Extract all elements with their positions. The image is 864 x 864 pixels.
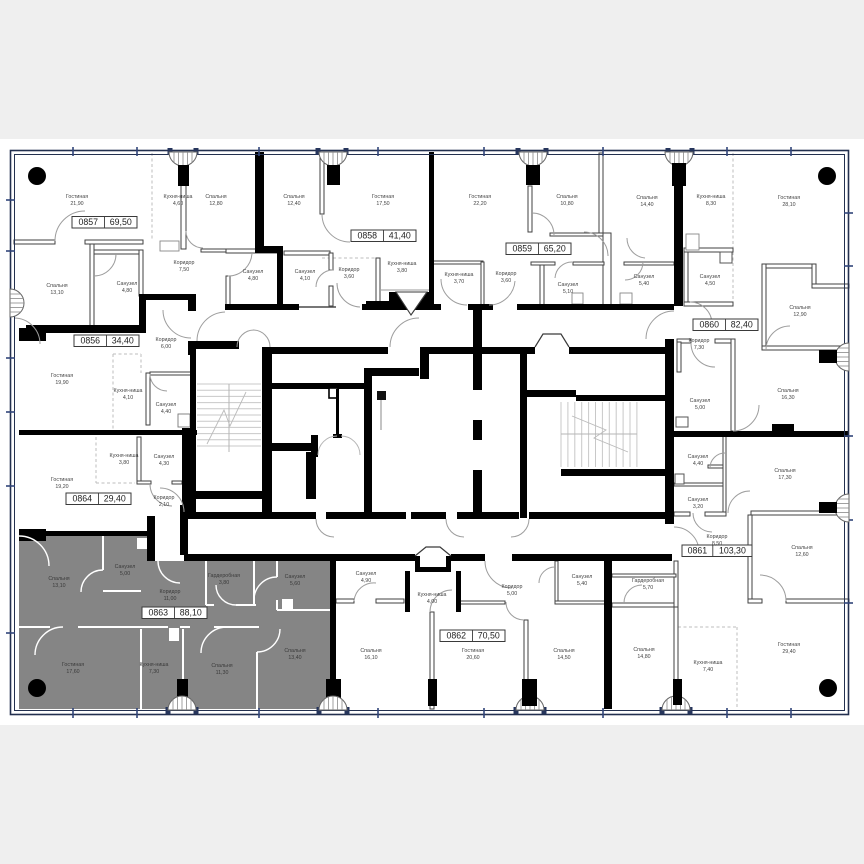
svg-text:4,10: 4,10	[300, 276, 310, 282]
svg-text:4,10: 4,10	[123, 395, 133, 401]
svg-text:6,00: 6,00	[161, 344, 171, 350]
svg-text:Коридор: Коридор	[156, 337, 177, 343]
svg-text:0864: 0864	[72, 494, 92, 504]
svg-text:Кухня-ниша: Кухня-ниша	[696, 194, 725, 200]
svg-text:4,00: 4,00	[427, 599, 437, 605]
svg-text:Санузел: Санузел	[634, 274, 655, 280]
svg-text:3,60: 3,60	[344, 274, 354, 280]
svg-text:Коридор: Коридор	[502, 584, 523, 590]
svg-text:Коридор: Коридор	[496, 271, 517, 277]
svg-text:Санузел: Санузел	[356, 571, 377, 577]
svg-text:4,50: 4,50	[705, 281, 715, 287]
svg-text:Санузел: Санузел	[688, 454, 709, 460]
svg-text:Гостиная: Гостиная	[462, 648, 484, 654]
svg-text:Спальня: Спальня	[205, 194, 226, 200]
svg-text:14,50: 14,50	[557, 655, 570, 661]
svg-text:12,60: 12,60	[795, 552, 808, 558]
svg-text:Спальня: Спальня	[774, 468, 795, 474]
svg-text:17,30: 17,30	[778, 475, 791, 481]
svg-text:19,90: 19,90	[55, 380, 68, 386]
svg-text:3,80: 3,80	[119, 460, 129, 466]
svg-text:Спальня: Спальня	[283, 194, 304, 200]
svg-text:Коридор: Коридор	[174, 260, 195, 266]
svg-text:3,80: 3,80	[397, 268, 407, 274]
svg-text:4,30: 4,30	[159, 461, 169, 467]
svg-text:65,20: 65,20	[544, 244, 566, 254]
svg-text:19,20: 19,20	[55, 484, 68, 490]
svg-text:Гостиная: Гостиная	[51, 373, 73, 379]
svg-text:Санузел: Санузел	[690, 398, 711, 404]
svg-text:29,40: 29,40	[104, 494, 126, 504]
svg-text:13,10: 13,10	[50, 290, 63, 296]
svg-text:22,20: 22,20	[473, 201, 486, 207]
svg-text:34,40: 34,40	[112, 336, 134, 346]
svg-text:Спальня: Спальня	[789, 305, 810, 311]
svg-text:3,70: 3,70	[454, 279, 464, 285]
svg-text:69,50: 69,50	[110, 217, 132, 227]
svg-text:16,10: 16,10	[364, 655, 377, 661]
svg-text:Спальня: Спальня	[777, 388, 798, 394]
svg-text:3,20: 3,20	[693, 504, 703, 510]
svg-text:7,30: 7,30	[149, 669, 159, 675]
svg-text:Спальня: Спальня	[211, 663, 232, 669]
svg-text:Гостиная: Гостиная	[469, 194, 491, 200]
svg-text:5,10: 5,10	[563, 289, 573, 295]
svg-text:0862: 0862	[446, 631, 466, 641]
svg-text:Гостиная: Гостиная	[66, 194, 88, 200]
svg-text:Кухня-ниша: Кухня-ниша	[109, 453, 138, 459]
svg-text:29,40: 29,40	[782, 649, 795, 655]
svg-text:4,40: 4,40	[161, 409, 171, 415]
svg-text:5,60: 5,60	[290, 581, 300, 587]
svg-text:20,60: 20,60	[466, 655, 479, 661]
svg-text:Санузел: Санузел	[572, 574, 593, 580]
svg-text:Гардеробная: Гардеробная	[208, 573, 240, 579]
svg-text:12,80: 12,80	[209, 201, 222, 207]
svg-text:4,60: 4,60	[173, 201, 183, 207]
svg-text:70,50: 70,50	[478, 631, 500, 641]
svg-text:Спальня: Спальня	[284, 648, 305, 654]
svg-text:Гостиная: Гостиная	[62, 662, 84, 668]
svg-text:0863: 0863	[148, 608, 168, 618]
svg-text:28,10: 28,10	[782, 202, 795, 208]
svg-text:Кухня-ниша: Кухня-ниша	[139, 662, 168, 668]
svg-text:5,00: 5,00	[120, 571, 130, 577]
svg-text:Санузел: Санузел	[700, 274, 721, 280]
svg-text:Коридор: Коридор	[160, 589, 181, 595]
svg-text:4,40: 4,40	[693, 461, 703, 467]
svg-text:Кухня-ниша: Кухня-ниша	[387, 261, 416, 267]
svg-text:Санузел: Санузел	[154, 454, 175, 460]
svg-text:2,10: 2,10	[159, 502, 169, 508]
svg-text:Спальня: Спальня	[48, 576, 69, 582]
svg-text:0859: 0859	[512, 244, 532, 254]
svg-text:14,80: 14,80	[637, 654, 650, 660]
svg-text:Санузел: Санузел	[117, 281, 138, 287]
svg-text:5,00: 5,00	[695, 405, 705, 411]
svg-text:Кухня-ниша: Кухня-ниша	[417, 592, 446, 598]
svg-text:Спальня: Спальня	[553, 648, 574, 654]
svg-text:82,40: 82,40	[731, 320, 753, 330]
svg-text:7,50: 7,50	[179, 267, 189, 273]
svg-text:0860: 0860	[699, 320, 719, 330]
svg-text:11,00: 11,00	[164, 596, 177, 602]
svg-text:Спальня: Спальня	[633, 647, 654, 653]
svg-text:10,80: 10,80	[560, 201, 573, 207]
svg-text:Спальня: Спальня	[636, 195, 657, 201]
svg-text:4,80: 4,80	[122, 288, 132, 294]
svg-text:Гостиная: Гостиная	[51, 477, 73, 483]
svg-text:5,40: 5,40	[639, 281, 649, 287]
svg-text:Гостиная: Гостиная	[372, 194, 394, 200]
svg-text:Гардеробная: Гардеробная	[632, 578, 664, 584]
svg-text:103,30: 103,30	[719, 546, 746, 556]
svg-text:Санузел: Санузел	[558, 282, 579, 288]
svg-text:Спальня: Спальня	[791, 545, 812, 551]
svg-text:8,50: 8,50	[712, 541, 722, 547]
svg-text:Коридор: Коридор	[707, 534, 728, 540]
svg-text:Кухня-ниша: Кухня-ниша	[113, 388, 142, 394]
svg-text:17,60: 17,60	[66, 669, 79, 675]
svg-text:0857: 0857	[78, 217, 98, 227]
svg-text:Спальня: Спальня	[360, 648, 381, 654]
svg-text:Спальня: Спальня	[46, 283, 67, 289]
svg-text:41,40: 41,40	[389, 231, 411, 241]
svg-text:Гостиная: Гостиная	[778, 195, 800, 201]
svg-text:5,40: 5,40	[577, 581, 587, 587]
svg-text:Санузел: Санузел	[243, 269, 264, 275]
svg-text:16,30: 16,30	[781, 395, 794, 401]
svg-text:0856: 0856	[80, 336, 100, 346]
svg-text:13,40: 13,40	[288, 655, 301, 661]
svg-text:12,90: 12,90	[793, 312, 806, 318]
svg-text:Коридор: Коридор	[339, 267, 360, 273]
svg-text:Коридор: Коридор	[154, 495, 175, 501]
svg-text:5,00: 5,00	[507, 591, 517, 597]
svg-text:13,10: 13,10	[52, 583, 65, 589]
svg-text:3,80: 3,80	[219, 580, 229, 586]
svg-text:Кухня-ниша: Кухня-ниша	[444, 272, 473, 278]
svg-text:11,30: 11,30	[216, 670, 229, 676]
svg-text:Кухня-ниша: Кухня-ниша	[693, 660, 722, 666]
svg-text:12,40: 12,40	[287, 201, 300, 207]
svg-text:0858: 0858	[357, 231, 377, 241]
svg-text:21,90: 21,90	[70, 201, 83, 207]
svg-text:4,80: 4,80	[248, 276, 258, 282]
svg-text:3,60: 3,60	[501, 278, 511, 284]
svg-text:Кухня-ниша: Кухня-ниша	[163, 194, 192, 200]
svg-text:Санузел: Санузел	[295, 269, 316, 275]
svg-text:7,40: 7,40	[703, 667, 713, 673]
svg-text:14,40: 14,40	[640, 202, 653, 208]
svg-text:Санузел: Санузел	[285, 574, 306, 580]
svg-text:0861: 0861	[688, 546, 708, 556]
svg-text:7,30: 7,30	[694, 345, 704, 351]
svg-text:Санузел: Санузел	[115, 564, 136, 570]
svg-text:17,50: 17,50	[376, 201, 389, 207]
svg-text:5,70: 5,70	[643, 585, 653, 591]
svg-text:Санузел: Санузел	[156, 402, 177, 408]
svg-text:Коридор: Коридор	[689, 338, 710, 344]
svg-text:8,30: 8,30	[706, 201, 716, 207]
svg-text:Санузел: Санузел	[688, 497, 709, 503]
svg-text:88,10: 88,10	[180, 608, 202, 618]
svg-text:4,90: 4,90	[361, 578, 371, 584]
svg-text:Гостиная: Гостиная	[778, 642, 800, 648]
svg-text:Спальня: Спальня	[556, 194, 577, 200]
